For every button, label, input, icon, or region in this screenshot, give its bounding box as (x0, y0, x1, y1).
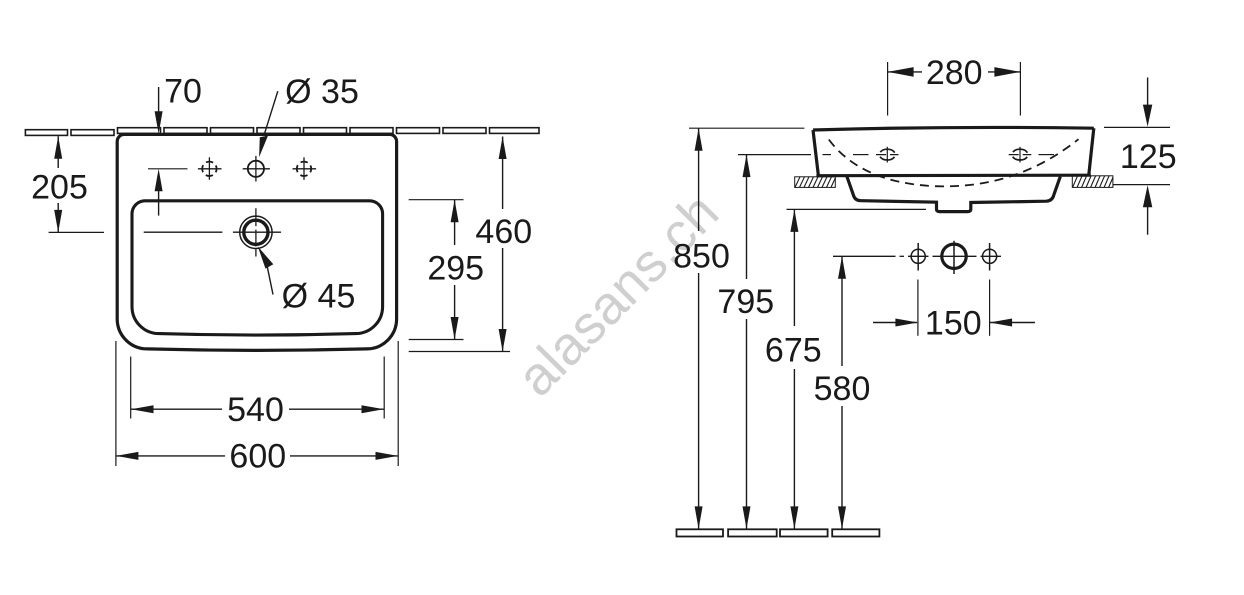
svg-text:150: 150 (925, 305, 982, 343)
svg-text:70: 70 (164, 73, 202, 111)
svg-text:205: 205 (31, 169, 88, 207)
svg-text:580: 580 (814, 370, 871, 408)
svg-text:850: 850 (673, 238, 730, 276)
svg-text:795: 795 (717, 283, 774, 321)
svg-text:Ø 35: Ø 35 (285, 73, 359, 111)
svg-text:280: 280 (926, 54, 983, 92)
svg-text:600: 600 (229, 438, 286, 476)
svg-text:125: 125 (1120, 138, 1177, 176)
svg-text:295: 295 (427, 250, 484, 288)
svg-text:675: 675 (765, 332, 822, 370)
svg-text:460: 460 (475, 213, 532, 251)
svg-text:540: 540 (227, 391, 284, 429)
svg-text:Ø 45: Ø 45 (282, 278, 356, 316)
